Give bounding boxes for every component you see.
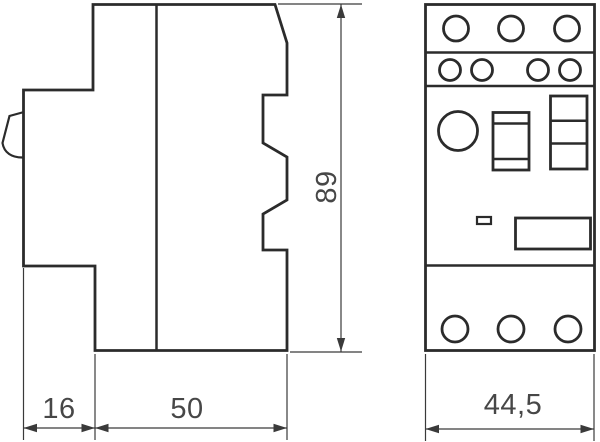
technical-drawing: 16 50 89 44,5 (0, 0, 600, 442)
din-rail-clip (3, 112, 25, 158)
dimension-labels: 16 50 89 44,5 (42, 170, 542, 425)
arrow-right-icon (274, 424, 288, 432)
arrow-right-icon (581, 425, 595, 433)
bottom-terminal-screws (442, 316, 581, 342)
adjustment-knob (439, 112, 478, 151)
aux-hole-icon (440, 60, 461, 81)
terminal-screw-icon (555, 316, 581, 342)
front-view-body (426, 5, 595, 351)
label-area (477, 217, 591, 249)
arrow-left-icon (95, 424, 109, 432)
dimension-label-50: 50 (170, 393, 203, 425)
terminal-screw-icon (555, 16, 580, 41)
aux-hole-icon (560, 60, 581, 81)
dimension-label-44-5: 44,5 (484, 389, 542, 421)
terminal-screw-icon (499, 16, 524, 41)
aux-hole-icon (472, 60, 493, 81)
arrow-left-icon (426, 425, 440, 433)
aux-hole-icon (528, 60, 549, 81)
dimension-drawing-svg: 16 50 89 44,5 (0, 0, 600, 442)
arrow-down-icon (337, 338, 345, 352)
start-button (493, 113, 529, 171)
stop-button-group (551, 96, 588, 169)
terminal-screw-icon (444, 16, 469, 41)
side-view (3, 5, 288, 351)
terminal-screw-icon (442, 316, 468, 342)
arrow-left-icon (24, 424, 38, 432)
label-window (516, 218, 591, 249)
trip-indicator (477, 217, 491, 224)
auxiliary-terminal-holes (440, 60, 581, 81)
dimension-arrowheads (24, 5, 595, 434)
dimension-label-16: 16 (42, 393, 75, 425)
arrow-right-icon (82, 424, 96, 432)
arrow-up-icon (337, 5, 345, 19)
control-area (439, 96, 588, 170)
dimension-label-89: 89 (311, 170, 343, 203)
terminal-screw-icon (498, 316, 524, 342)
dimension-lines: 16 50 89 44,5 (24, 4, 595, 441)
front-view (426, 5, 595, 351)
top-terminal-screws (444, 16, 580, 41)
